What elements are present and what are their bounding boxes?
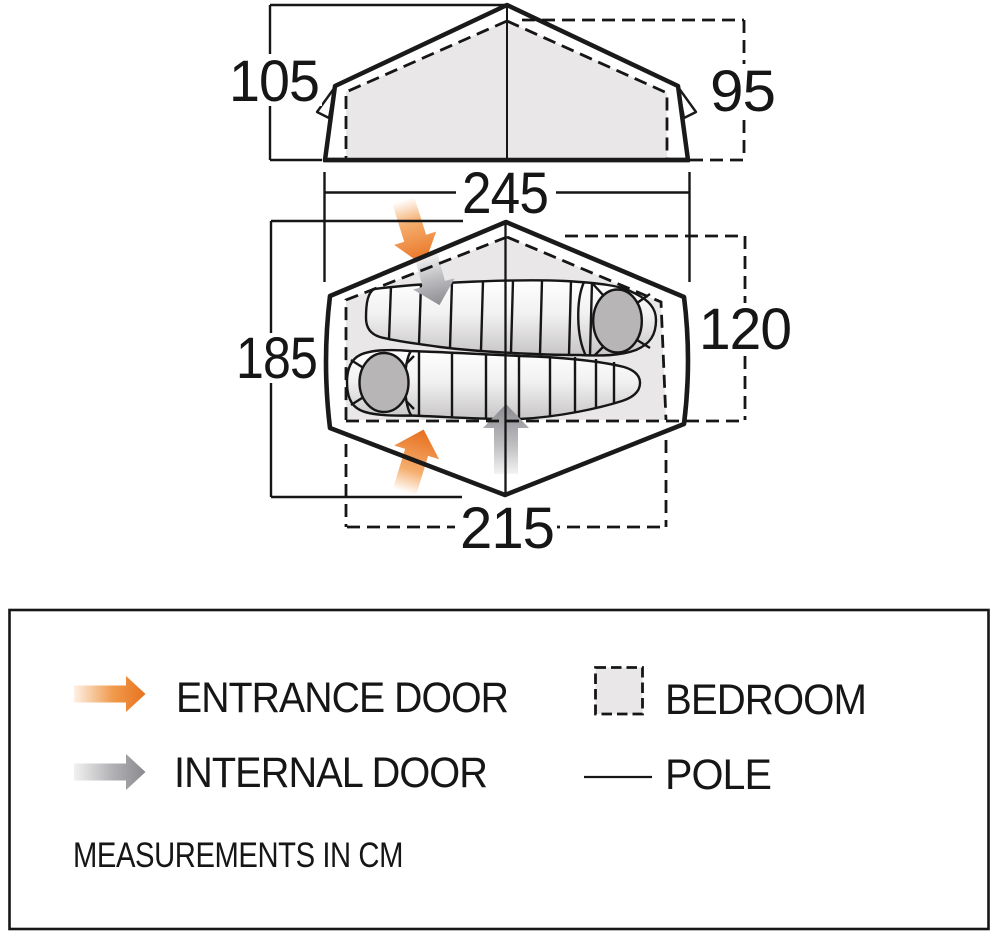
svg-text:POLE: POLE: [665, 751, 771, 799]
svg-text:ENTRANCE DOOR: ENTRANCE DOOR: [176, 674, 508, 722]
svg-text:BEDROOM: BEDROOM: [665, 676, 866, 724]
svg-text:105: 105: [229, 49, 319, 114]
svg-text:MEASUREMENTS IN CM: MEASUREMENTS IN CM: [73, 836, 403, 875]
svg-text:95: 95: [710, 59, 775, 124]
svg-text:INTERNAL DOOR: INTERNAL DOOR: [174, 749, 487, 797]
svg-text:120: 120: [699, 297, 791, 362]
svg-text:185: 185: [236, 326, 317, 391]
svg-text:245: 245: [462, 161, 548, 226]
svg-text:215: 215: [460, 496, 554, 561]
